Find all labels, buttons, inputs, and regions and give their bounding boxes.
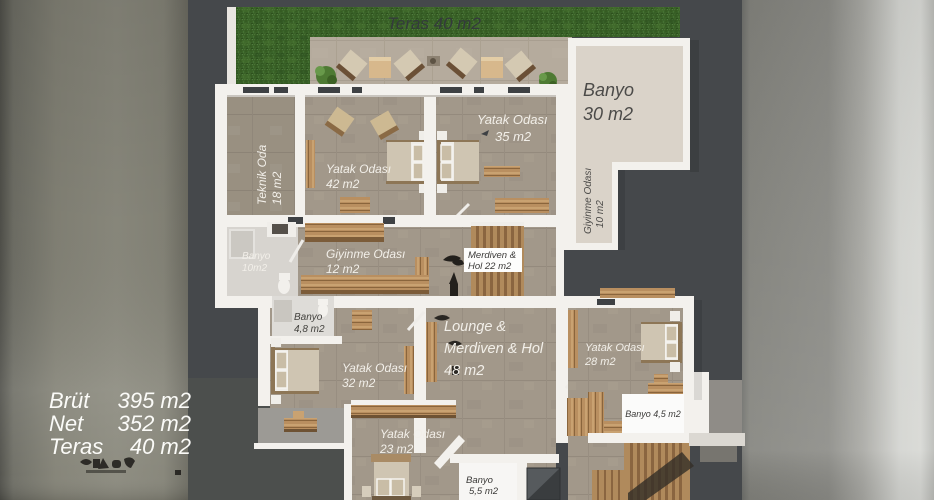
svg-text:10 m2: 10 m2 — [595, 200, 606, 228]
svg-text:Lounge &: Lounge & — [444, 319, 506, 335]
svg-text:32 m2: 32 m2 — [342, 376, 376, 390]
svg-text:Giyinme Odası: Giyinme Odası — [326, 247, 405, 261]
svg-text:30 m2: 30 m2 — [583, 104, 633, 124]
svg-text:Banyo: Banyo — [583, 80, 634, 100]
svg-text:395 m2: 395 m2 — [118, 388, 191, 413]
svg-text:Banyo 4,5 m2: Banyo 4,5 m2 — [625, 409, 681, 419]
svg-text:Yatak Odası: Yatak Odası — [380, 427, 445, 441]
svg-text:Brüt: Brüt — [49, 388, 90, 413]
svg-text:35 m2: 35 m2 — [495, 129, 532, 144]
svg-text:48 m2: 48 m2 — [444, 363, 484, 379]
svg-text:Yatak Odası: Yatak Odası — [477, 112, 548, 127]
svg-text:Teras 40 m2: Teras 40 m2 — [387, 14, 481, 33]
svg-text:42 m2: 42 m2 — [326, 177, 360, 191]
svg-text:Net: Net — [49, 411, 84, 436]
svg-text:28 m2: 28 m2 — [584, 356, 616, 368]
svg-text:Banyo: Banyo — [242, 251, 271, 262]
svg-text:Banyo: Banyo — [294, 312, 323, 323]
svg-text:352 m2: 352 m2 — [118, 411, 191, 436]
svg-text:40 m2: 40 m2 — [130, 434, 191, 459]
svg-text:Banyo: Banyo — [466, 475, 493, 486]
svg-text:23 m2: 23 m2 — [379, 442, 414, 456]
svg-text:4,8 m2: 4,8 m2 — [294, 324, 325, 335]
svg-text:Yatak Odası: Yatak Odası — [342, 361, 407, 375]
svg-text:Merdiven &: Merdiven & — [468, 250, 516, 261]
svg-text:18 m2: 18 m2 — [270, 171, 284, 205]
svg-text:Yatak Odası: Yatak Odası — [585, 342, 645, 354]
svg-text:10m2: 10m2 — [242, 263, 267, 274]
svg-text:5,5 m2: 5,5 m2 — [469, 486, 499, 497]
svg-text:12 m2: 12 m2 — [326, 262, 360, 276]
svg-text:Yatak Odası: Yatak Odası — [326, 162, 391, 176]
svg-text:Teras: Teras — [49, 434, 103, 459]
svg-text:Hol 22 m2: Hol 22 m2 — [468, 261, 512, 272]
svg-text:Giyinme Odası: Giyinme Odası — [583, 168, 594, 234]
svg-text:Teknik Oda: Teknik Oda — [255, 144, 269, 205]
svg-text:Merdiven & Hol: Merdiven & Hol — [444, 341, 544, 357]
